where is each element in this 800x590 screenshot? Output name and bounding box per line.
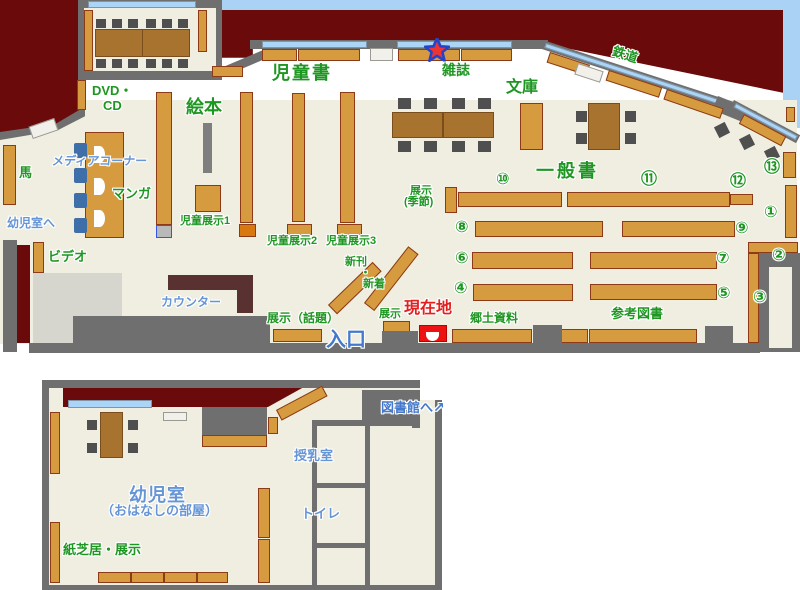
annex-room-wall-left xyxy=(312,420,317,585)
shelf-number-9: ⑨ xyxy=(735,221,749,238)
chair xyxy=(162,19,172,28)
shelf-bunko xyxy=(520,103,543,150)
chair xyxy=(112,19,122,28)
shelf-number-1: ① xyxy=(764,205,778,222)
label-dvd-line1: DVD・ xyxy=(92,84,132,98)
shelf-video xyxy=(33,242,44,273)
window-top-2 xyxy=(397,41,512,48)
study-room-window xyxy=(88,1,196,8)
chair xyxy=(625,111,636,122)
chair xyxy=(96,59,106,68)
label-ohanashi: （おはなしの部屋） xyxy=(101,504,218,518)
row-shelf-9 xyxy=(622,221,735,237)
jidosho-stack xyxy=(340,92,355,223)
jido-tenji3-base xyxy=(337,224,362,235)
chair xyxy=(112,59,122,68)
annex-small-shelf xyxy=(268,417,278,434)
annex-bottom-shelf xyxy=(98,572,131,583)
shelf-number-7: ⑦ xyxy=(716,251,730,268)
tenji-wadai-shelf xyxy=(273,329,322,342)
jido-tenji2-base xyxy=(287,224,312,235)
counter-floor-b xyxy=(33,316,73,343)
annex-table xyxy=(100,412,123,458)
kiosk-box xyxy=(156,225,172,238)
shelf-sanko-a xyxy=(560,329,588,343)
label-counter: カウンター xyxy=(161,296,221,309)
label-iriguchi: 入口 xyxy=(326,330,366,351)
shelf-number-10: ⑩ xyxy=(496,172,510,189)
study-room-shelf-left xyxy=(84,10,93,71)
label-to-toshokan: 図書館へ↗ xyxy=(381,400,445,415)
label-kamishibai: 紙芝居・展示 xyxy=(63,543,141,557)
jidosho-stack xyxy=(292,93,305,222)
label-media-corner: メディアコーナー xyxy=(51,155,147,168)
shelf-number-11: ⑪ xyxy=(641,172,657,189)
counter-desk-a xyxy=(168,275,253,290)
chair xyxy=(576,133,587,144)
to-toshokan-text: 図書館へ xyxy=(381,400,433,415)
label-bunko: 文庫 xyxy=(506,80,538,97)
media-seat xyxy=(74,168,87,183)
chair xyxy=(146,19,156,28)
annex-room-divider-1 xyxy=(312,483,370,488)
study-table-right xyxy=(142,29,190,57)
arrow-northeast-icon: ↗ xyxy=(433,399,445,415)
counter-desk-b xyxy=(237,290,253,313)
annex-bottom-shelf xyxy=(164,572,197,583)
wall-left xyxy=(3,240,17,352)
right-corridor-floor xyxy=(769,267,792,348)
reading-table xyxy=(392,112,443,138)
chair xyxy=(162,59,172,68)
label-tenji-kisetsu-2: (季節) xyxy=(404,197,433,209)
label-zasshi: 雑誌 xyxy=(442,63,470,78)
row-shelf-6 xyxy=(472,252,573,269)
orange-box xyxy=(239,224,256,237)
label-manga: マンガ xyxy=(112,187,151,201)
annex-shelf-under-block xyxy=(202,435,267,447)
label-junyushitsu: 授乳室 xyxy=(294,449,333,463)
chair xyxy=(128,19,138,28)
chair xyxy=(146,59,156,68)
label-toire: トイレ xyxy=(301,507,340,521)
shelf-13 xyxy=(783,152,796,178)
shelf-number-2: ② xyxy=(772,248,786,265)
chair xyxy=(178,19,188,28)
label-dvd-line2: CD xyxy=(103,99,122,113)
row-shelf-8 xyxy=(475,221,603,237)
shelf-number-6: ⑥ xyxy=(455,251,469,268)
row-shelf-5 xyxy=(590,284,717,300)
label-jido-tenji1: 児童展示1 xyxy=(180,216,230,228)
pillar xyxy=(203,123,212,173)
label-video: ビデオ xyxy=(48,250,87,264)
reading-table xyxy=(443,112,494,138)
label-jido-tenji2: 児童展示2 xyxy=(267,236,317,248)
chair xyxy=(576,111,587,122)
label-tenji: 展示 xyxy=(379,309,401,321)
chair xyxy=(478,141,491,152)
shelf-number-5: ⑤ xyxy=(717,286,731,303)
stack-end-panel xyxy=(17,245,30,343)
row-shelf-11 xyxy=(567,192,730,207)
annex-window xyxy=(68,400,152,408)
shelf-1 xyxy=(785,185,797,238)
label-tenji-wadai: 展示（話題） xyxy=(267,312,339,325)
label-jidosho: 児童書 xyxy=(272,64,332,83)
wall-entrance-left xyxy=(382,331,418,349)
annex-wall-notch xyxy=(337,390,362,404)
label-uma: 馬 xyxy=(19,166,32,180)
annex-exterior-cut xyxy=(420,378,442,400)
shelf-number-3: ③ xyxy=(753,290,767,307)
display-board-top xyxy=(370,48,393,61)
annex-gray-block xyxy=(202,407,267,435)
media-booth xyxy=(94,210,105,227)
annex-left-shelf xyxy=(50,412,60,474)
chair xyxy=(625,133,636,144)
study-room-shelf-right xyxy=(198,10,207,52)
label-shinchaku: 新着 xyxy=(363,279,385,291)
chair xyxy=(128,420,138,430)
library-floor-map: 児童書 絵本 雑誌 文庫 鉄道 DVD・ CD メディアコーナー マンガ 馬 幼… xyxy=(0,0,800,590)
annex-room-wall-mid xyxy=(365,420,370,585)
row-shelf-4 xyxy=(473,284,573,301)
shelf-uma xyxy=(3,145,16,205)
jidosho-stack xyxy=(240,92,253,223)
chair xyxy=(452,141,465,152)
shelf-kyodo xyxy=(452,329,532,343)
shelf-number-8: ⑧ xyxy=(455,220,469,237)
chair xyxy=(478,98,491,109)
annex-room-wall-top xyxy=(312,420,412,426)
shelf-number-12: ⑫ xyxy=(730,174,746,191)
wall-entrance-right xyxy=(533,325,562,349)
star-icon xyxy=(424,38,450,62)
shelf-below-room-right xyxy=(212,66,243,77)
label-to-yojishitsu: 幼児室へ xyxy=(7,217,55,230)
label-jido-tenji3: 児童展示3 xyxy=(326,236,376,248)
label-kyodo-shiryo: 郷土資料 xyxy=(470,312,518,325)
chair xyxy=(128,59,138,68)
shelf-below-room-left xyxy=(77,80,86,110)
magazine-shelf xyxy=(298,49,360,61)
corner-shelf-piece xyxy=(786,107,795,122)
magazine-shelf xyxy=(262,49,297,61)
label-ippansho: 一般書 xyxy=(536,162,599,181)
shelf-number-4: ④ xyxy=(454,281,468,298)
magazine-shelf xyxy=(461,49,512,61)
wall-sanko-block xyxy=(705,326,733,352)
media-booth xyxy=(94,178,105,195)
label-sanko-tosho: 参考図書 xyxy=(611,307,663,321)
media-seat xyxy=(74,218,87,233)
jido-tenji1-box xyxy=(195,185,221,212)
chair xyxy=(424,141,437,152)
annex-left-shelf xyxy=(50,522,60,583)
annex-mid-shelf xyxy=(258,539,270,583)
general-table xyxy=(588,103,620,150)
chair xyxy=(96,19,106,28)
annex-mid-shelf xyxy=(258,488,270,538)
row-shelf-10 xyxy=(458,192,562,207)
row-shelf-12 xyxy=(730,194,753,205)
annex-display-board xyxy=(163,412,187,421)
annex-bottom-shelf xyxy=(131,572,164,583)
chair xyxy=(398,141,411,152)
label-genzaichi: 現在地 xyxy=(404,301,452,318)
chair xyxy=(424,98,437,109)
chair xyxy=(87,443,97,453)
chair xyxy=(178,59,188,68)
shelf-sanko-b xyxy=(589,329,697,343)
row-shelf-7 xyxy=(590,252,717,269)
media-seat xyxy=(74,193,87,208)
chair xyxy=(128,443,138,453)
chair xyxy=(87,420,97,430)
shelf-kisetsu xyxy=(445,187,457,213)
annex-room-divider-2 xyxy=(312,543,370,548)
annex-bottom-shelf xyxy=(197,572,228,583)
study-table-left xyxy=(95,29,143,57)
window-top-1 xyxy=(262,41,367,48)
stack-area-upperleft xyxy=(0,0,80,132)
shelf-manga xyxy=(156,92,172,225)
counter-floor-a xyxy=(33,273,122,316)
shelf-number-13: ⑬ xyxy=(764,160,780,177)
chair xyxy=(398,98,411,109)
label-ehon: 絵本 xyxy=(186,98,222,117)
chair xyxy=(452,98,465,109)
